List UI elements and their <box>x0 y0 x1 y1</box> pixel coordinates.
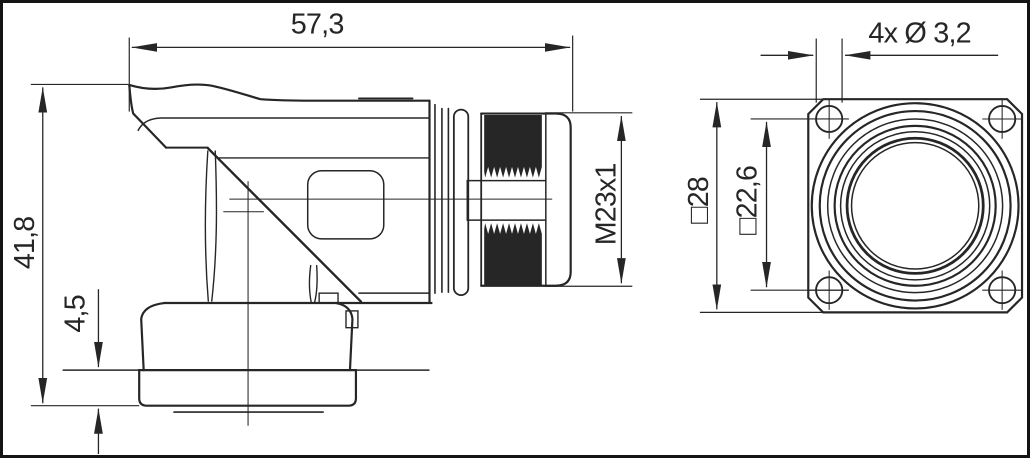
boot-rib-2 <box>309 266 311 303</box>
seal-ring <box>454 110 468 296</box>
front-view <box>808 99 1022 312</box>
thread-band-bottom <box>484 223 542 286</box>
technical-drawing-canvas: 57,3 41,8 4,5 M23x1 4x Ø 3,2 □28 □22,6 <box>0 0 1030 458</box>
extension-lines <box>31 36 848 406</box>
dim-thread-label: M23x1 <box>590 163 622 245</box>
thread-section <box>467 114 570 286</box>
thread-band-top <box>484 115 542 178</box>
dim-nut-height-label: 4,5 <box>59 295 91 332</box>
latch-detail <box>319 293 338 303</box>
dim-hole-pitch-label: □22,6 <box>731 166 763 235</box>
coupling-rings <box>435 105 468 295</box>
dim-overall-height-label: 41,8 <box>9 217 41 270</box>
dim-mounting-holes-label: 4x Ø 3,2 <box>868 18 971 50</box>
connector-face-circles <box>812 103 1019 308</box>
dim-flange-square-label: □28 <box>683 177 715 224</box>
boot-rib <box>205 151 208 301</box>
dim-overall-length-label: 57,3 <box>291 9 344 41</box>
drawing-svg: 57,3 41,8 4,5 M23x1 4x Ø 3,2 □28 □22,6 <box>3 3 1027 455</box>
side-view <box>129 85 570 426</box>
body-window <box>308 171 384 239</box>
